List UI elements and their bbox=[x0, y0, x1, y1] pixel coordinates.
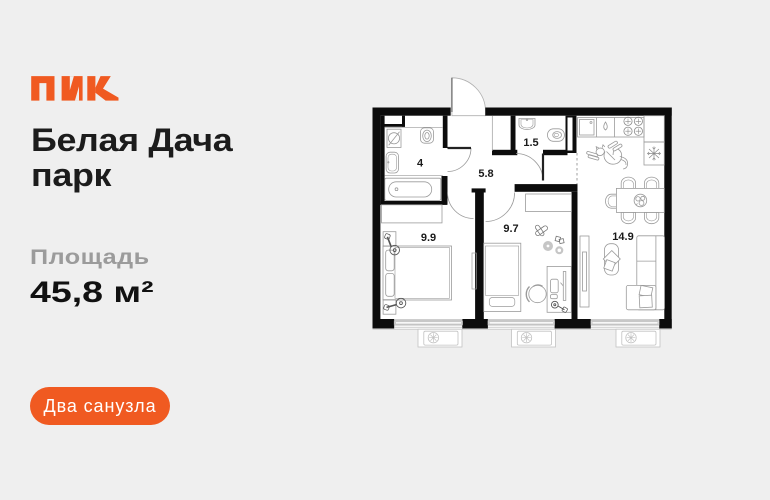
svg-text:9.9: 9.9 bbox=[421, 232, 436, 244]
svg-text:1.5: 1.5 bbox=[523, 137, 538, 149]
svg-text:14.9: 14.9 bbox=[612, 231, 633, 243]
svg-text:5.8: 5.8 bbox=[478, 168, 493, 180]
svg-text:9.7: 9.7 bbox=[503, 223, 518, 235]
svg-text:4: 4 bbox=[417, 158, 424, 170]
